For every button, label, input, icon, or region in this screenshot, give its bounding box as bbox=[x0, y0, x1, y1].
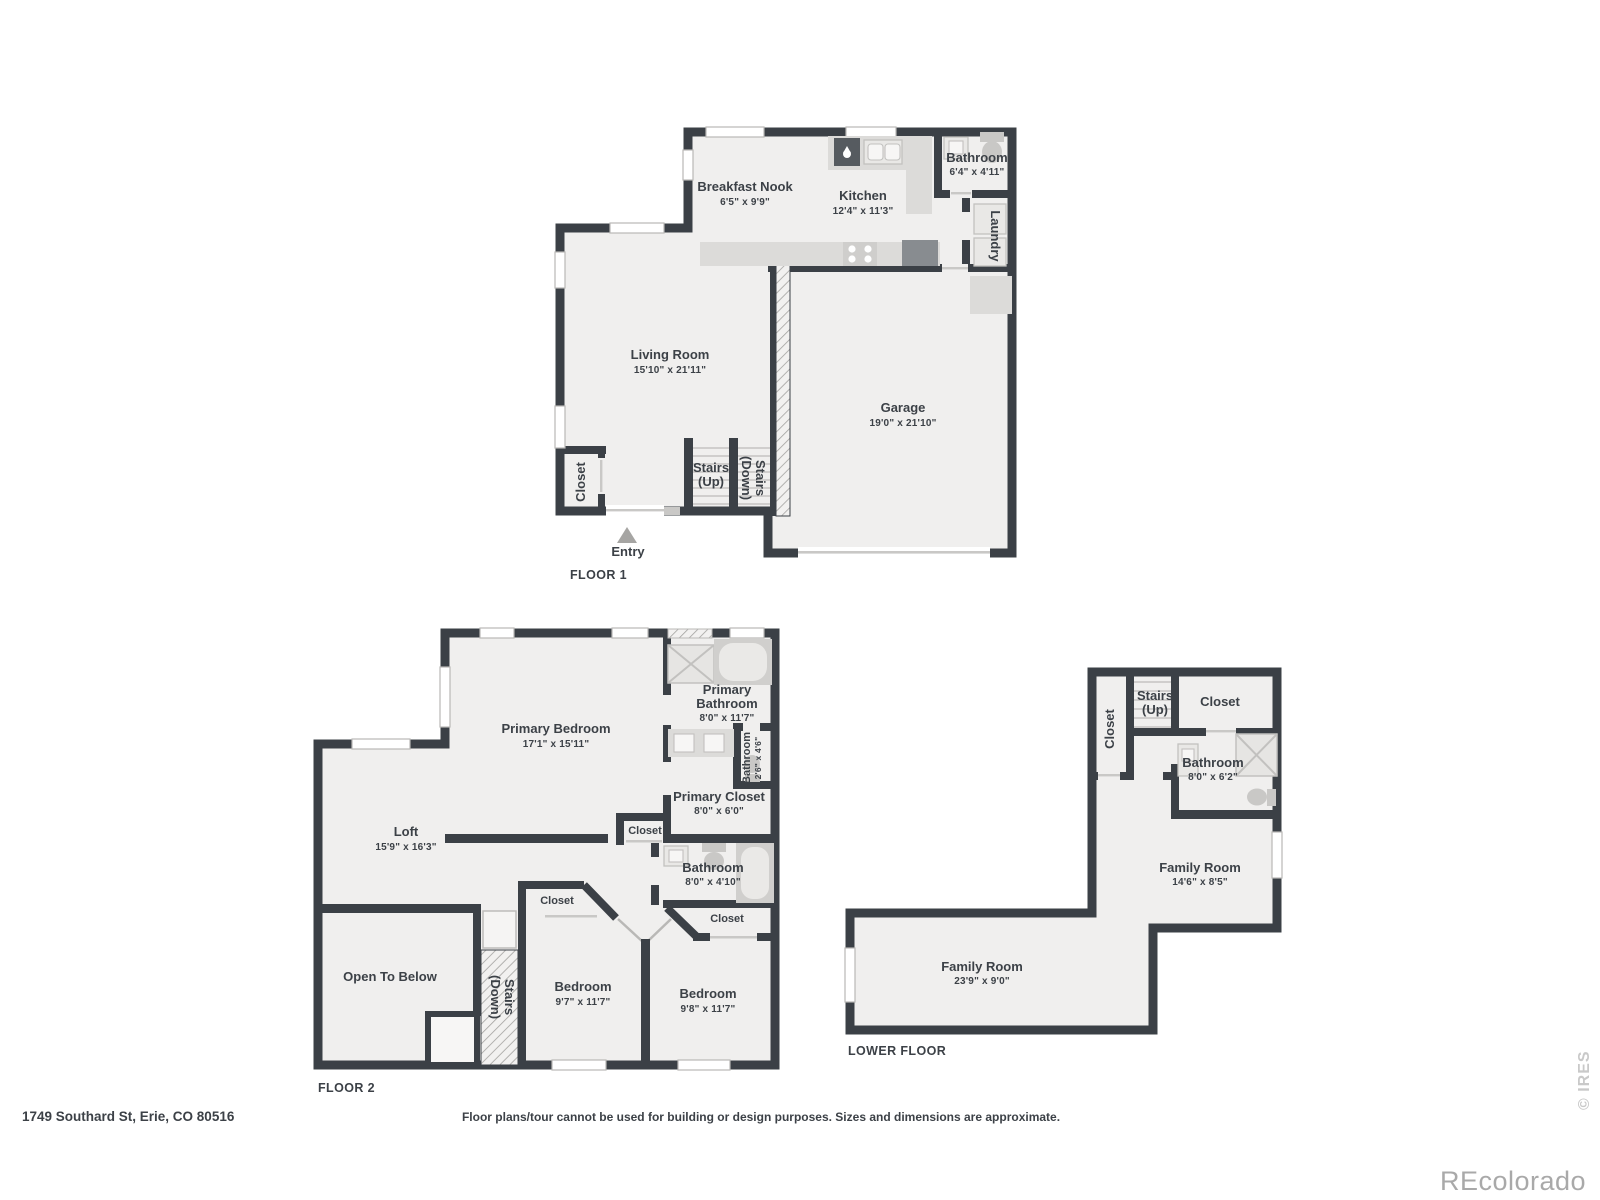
open-to-below-label: Open To Below bbox=[343, 969, 438, 984]
primary-closet-dims: 8'0" x 6'0" bbox=[694, 806, 744, 817]
floor1-plan: Breakfast Nook 6'5" x 9'9" Kitchen 12'4"… bbox=[555, 127, 1012, 582]
bedroom1-dims: 9'7" x 11'7" bbox=[555, 997, 610, 1008]
kitchen-dims: 12'4" x 11'3" bbox=[833, 206, 894, 217]
small-bathroom-label: Bathroom 2'6" x 4'6" bbox=[741, 732, 763, 784]
breakfast-nook-label: Breakfast Nook bbox=[697, 179, 793, 194]
stairs-up-label: Stairs (Up) bbox=[693, 460, 729, 489]
bedroom1-label: Bedroom bbox=[554, 979, 611, 994]
living-room-label: Living Room bbox=[631, 347, 710, 362]
floor-plan-svg: Breakfast Nook 6'5" x 9'9" Kitchen 12'4"… bbox=[0, 0, 1600, 1200]
lower-closet-label: Closet bbox=[1200, 694, 1240, 709]
vanity-icon bbox=[668, 729, 734, 757]
svg-text:Stairs: Stairs bbox=[1137, 688, 1173, 703]
bathroom2-dims: 8'0" x 4'10" bbox=[685, 877, 741, 888]
lower-outline bbox=[850, 672, 1277, 1030]
stove-icon bbox=[843, 242, 877, 266]
primary-bathroom-label1: Primary bbox=[703, 682, 752, 697]
bathroom2-label: Bathroom bbox=[682, 860, 743, 875]
ires-watermark: © IRES bbox=[1576, 1050, 1593, 1110]
family-room-upper-dims: 14'6" x 8'5" bbox=[1172, 877, 1228, 888]
floor2-plan: Primary Bedroom 17'1" x 15'11" Primary B… bbox=[318, 628, 775, 1095]
bedroom2-label: Bedroom bbox=[679, 986, 736, 1001]
disclaimer-text: Floor plans/tour cannot be used for buil… bbox=[462, 1110, 1060, 1124]
lower-floor-plan: Closet Stairs (Up) Closet Bathroom 8'0" … bbox=[845, 672, 1282, 1058]
bathroom1-label: Bathroom bbox=[946, 150, 1007, 165]
loft-dims: 15'9" x 16'3" bbox=[375, 842, 436, 853]
living-room-dims: 15'10" x 21'11" bbox=[634, 365, 706, 376]
stairs-down2-label: Stairs (Down) bbox=[488, 975, 517, 1019]
property-address: 1749 Southard St, Erie, CO 80516 bbox=[22, 1109, 235, 1124]
floor-plan-page: Breakfast Nook 6'5" x 9'9" Kitchen 12'4"… bbox=[0, 0, 1600, 1200]
svg-text:(Down): (Down) bbox=[488, 975, 503, 1019]
bathroom1-dims: 6'4" x 4'11" bbox=[949, 167, 1004, 178]
oven-icon bbox=[902, 240, 938, 266]
svg-text:(Up): (Up) bbox=[1142, 702, 1168, 717]
family-room-dims: 23'9" x 9'0" bbox=[954, 976, 1010, 987]
floor2-title: FLOOR 2 bbox=[318, 1081, 375, 1095]
entry-label: Entry bbox=[611, 544, 645, 559]
stairs-down-label: Stairs (Down) bbox=[739, 456, 768, 500]
family-room-upper-label: Family Room bbox=[1159, 860, 1241, 875]
lower-floor-title: LOWER FLOOR bbox=[848, 1044, 946, 1058]
lower-bathroom-label: Bathroom bbox=[1182, 755, 1243, 770]
primary-bathroom-label2: Bathroom bbox=[696, 696, 757, 711]
kitchen-sink-icon bbox=[864, 140, 902, 164]
kitchen-label: Kitchen bbox=[839, 188, 887, 203]
lower-toilet-icon bbox=[1247, 789, 1276, 807]
primary-closet-label: Primary Closet bbox=[673, 789, 765, 804]
lower-stairs-up-label: Stairs (Up) bbox=[1137, 688, 1173, 717]
floor1-title: FLOOR 1 bbox=[570, 568, 627, 582]
closet-hall-label: Closet bbox=[628, 825, 662, 837]
lower-closet-left-label: Closet bbox=[1102, 708, 1117, 748]
svg-text:Stairs: Stairs bbox=[502, 979, 517, 1015]
primary-tub-icon bbox=[714, 639, 772, 685]
bedroom2-dims: 9'8" x 11'7" bbox=[680, 1004, 735, 1015]
primary-bedroom-label: Primary Bedroom bbox=[501, 721, 610, 736]
primary-bathroom-dims: 8'0" x 11'7" bbox=[699, 713, 754, 724]
closet-bedroom2-label: Closet bbox=[710, 913, 744, 925]
lower-bathroom-dims: 8'0" x 6'2" bbox=[1188, 772, 1238, 783]
recolorado-watermark: REcolorado bbox=[1440, 1166, 1586, 1196]
garage-dims: 19'0" x 21'10" bbox=[869, 418, 936, 429]
svg-text:Bathroom: Bathroom bbox=[741, 732, 753, 784]
garage-label: Garage bbox=[881, 400, 926, 415]
closet-bedroom1-label: Closet bbox=[540, 895, 574, 907]
laundry-label: Laundry bbox=[988, 210, 1003, 262]
range-hood-icon bbox=[834, 138, 860, 166]
loft-label: Loft bbox=[394, 824, 419, 839]
primary-shower-icon bbox=[668, 645, 714, 683]
entry-arrow-icon bbox=[617, 527, 637, 543]
svg-text:(Down): (Down) bbox=[739, 456, 754, 500]
breakfast-nook-dims: 6'5" x 9'9" bbox=[720, 197, 770, 208]
svg-text:Stairs: Stairs bbox=[753, 460, 768, 496]
svg-text:Stairs: Stairs bbox=[693, 460, 729, 475]
family-room-label: Family Room bbox=[941, 959, 1023, 974]
closet1-label: Closet bbox=[573, 461, 588, 501]
svg-text:2'6" x 4'6": 2'6" x 4'6" bbox=[753, 737, 763, 780]
primary-bedroom-dims: 17'1" x 15'11" bbox=[523, 739, 590, 750]
svg-text:(Up): (Up) bbox=[698, 474, 724, 489]
